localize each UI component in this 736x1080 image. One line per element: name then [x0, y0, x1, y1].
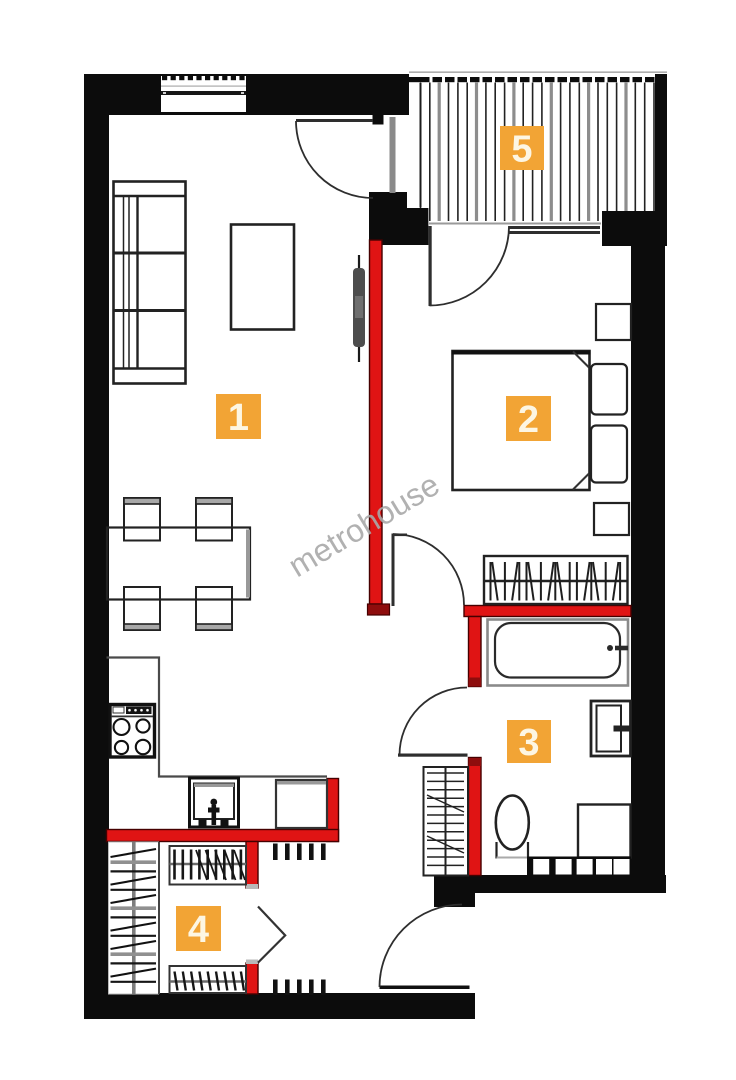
svg-text:1: 1: [228, 397, 249, 439]
svg-text:5: 5: [511, 129, 532, 171]
svg-text:3: 3: [518, 722, 539, 764]
svg-text:2: 2: [518, 399, 539, 441]
svg-text:4: 4: [188, 909, 209, 951]
